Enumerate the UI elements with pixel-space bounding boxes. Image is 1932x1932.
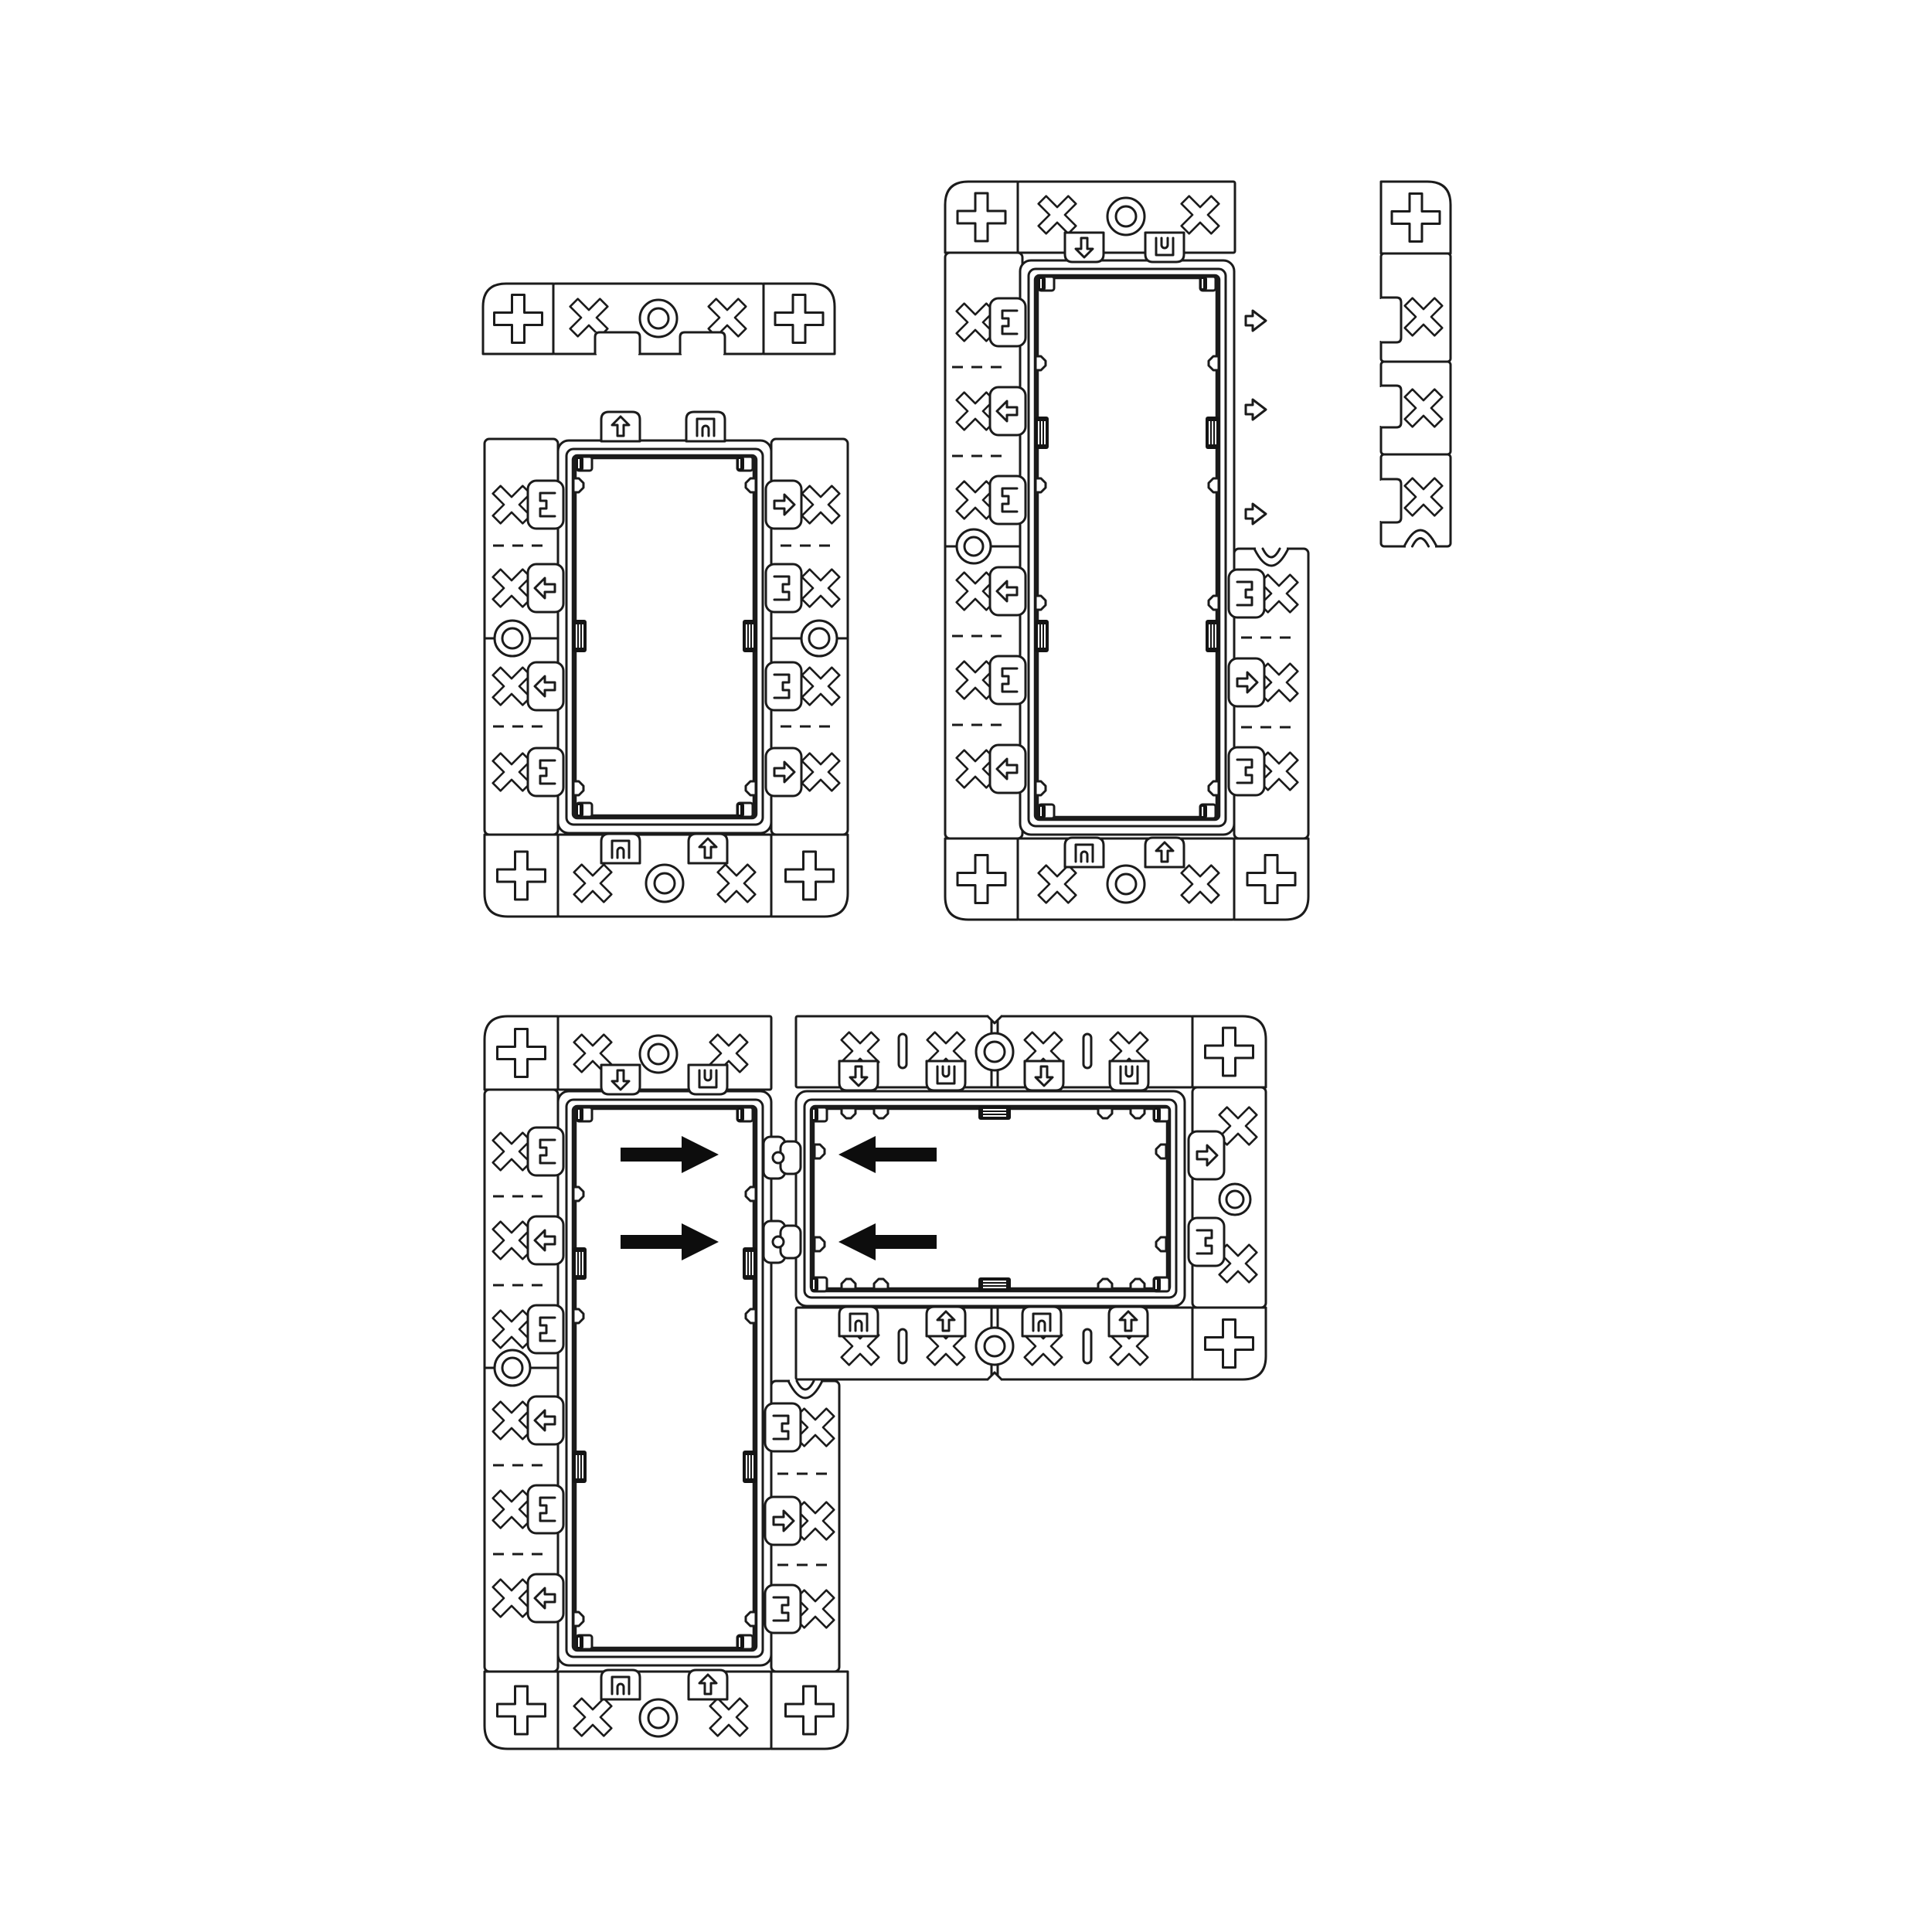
corner-clip-icon xyxy=(577,1107,592,1121)
corner-clip-icon xyxy=(1200,804,1216,818)
edge-notch xyxy=(682,351,723,357)
snap-tab xyxy=(927,1307,965,1336)
latch-clip xyxy=(765,1497,801,1545)
side-tab-icon xyxy=(573,781,583,795)
edge-notch xyxy=(1378,387,1384,426)
latch-clip xyxy=(766,748,801,796)
joint-clip-icon xyxy=(764,1221,801,1263)
bracket-assembly-diagram xyxy=(0,0,1932,1932)
side-tab-icon xyxy=(1098,1279,1112,1289)
snap-tab xyxy=(1145,233,1184,262)
side-tab-icon xyxy=(573,1309,583,1323)
screw-hole-ring-inner xyxy=(648,308,668,328)
diagram-page xyxy=(0,0,1932,1932)
snap-tab xyxy=(601,1670,640,1699)
latch-clip xyxy=(528,748,563,796)
arc-cutout xyxy=(1256,546,1287,551)
screw-hole-ring-inner xyxy=(985,1042,1005,1062)
mounting-frame-thick-wall xyxy=(574,1107,755,1649)
side-tab-icon xyxy=(1036,478,1046,492)
screw-hole-ring-inner xyxy=(655,873,675,893)
mounting-frame-thick-wall xyxy=(812,1107,1168,1290)
latch-clip xyxy=(528,1305,563,1353)
corner-clip-icon xyxy=(1039,804,1054,818)
figure-joined-right-assembly xyxy=(764,1014,1268,1382)
screw-hole-ring-inner xyxy=(502,1358,522,1378)
side-tab-icon xyxy=(1131,1279,1145,1289)
arrow-tab-icon xyxy=(1246,311,1266,331)
side-tab-icon xyxy=(1098,1108,1112,1118)
side-tab-icon xyxy=(1036,596,1046,610)
corner-clip-icon xyxy=(1039,277,1054,291)
side-tab-icon xyxy=(746,781,756,795)
snap-tab xyxy=(1065,838,1104,867)
side-tab-icon xyxy=(746,1187,756,1201)
corner-clip-icon xyxy=(577,803,592,817)
latch-clip xyxy=(766,564,801,612)
ratchet-block-icon xyxy=(1206,417,1219,449)
latch-clip xyxy=(990,387,1026,435)
side-tab-icon xyxy=(573,1612,583,1626)
arrow-tab-icon xyxy=(1246,400,1266,420)
figure-joined-left-assembly xyxy=(481,1016,848,1749)
edge-notch xyxy=(1378,481,1384,521)
side-tab-icon xyxy=(1209,596,1219,610)
latch-clip xyxy=(1229,658,1264,706)
side-tab-icon xyxy=(1156,1237,1166,1251)
latch-clip xyxy=(528,1485,563,1533)
screw-hole-ring-inner xyxy=(1116,206,1136,226)
screw-hole-ring-inner xyxy=(648,1708,668,1728)
snap-tab xyxy=(686,412,725,441)
ratchet-block-icon xyxy=(573,1247,587,1280)
slot-mark-icon xyxy=(899,1329,906,1363)
snap-tab xyxy=(1110,1061,1148,1090)
snap-tab xyxy=(601,412,640,441)
side-tab-icon xyxy=(746,1612,756,1626)
ratchet-block-icon xyxy=(743,1247,757,1280)
side-tab-icon xyxy=(1156,1145,1166,1158)
latch-clip xyxy=(528,1216,563,1264)
ratchet-block-icon xyxy=(573,620,587,652)
snap-tab xyxy=(689,834,727,863)
snap-tab xyxy=(1065,233,1104,262)
arrow-tab-icon xyxy=(1246,504,1266,524)
ratchet-block-icon xyxy=(573,1451,587,1483)
ratchet-block-icon xyxy=(1035,620,1049,652)
edge-notch xyxy=(1378,299,1384,341)
latch-clip xyxy=(766,662,801,710)
side-tab-icon xyxy=(1036,781,1046,795)
ratchet-block-icon xyxy=(978,1277,1011,1291)
snap-tab xyxy=(689,1065,727,1094)
latch-clip xyxy=(1189,1131,1224,1179)
corner-clip-icon xyxy=(811,1107,827,1121)
snap-tab xyxy=(927,1061,965,1090)
slot-mark-icon xyxy=(1083,1034,1091,1068)
corner-clip-icon xyxy=(737,803,753,817)
latch-clip xyxy=(1229,570,1264,617)
latch-clip xyxy=(765,1403,801,1451)
side-tab-icon xyxy=(746,478,756,492)
snap-tab xyxy=(1022,1307,1061,1336)
figure-detached-top-strip xyxy=(483,284,835,357)
snap-tab xyxy=(839,1061,878,1090)
side-tab-icon xyxy=(573,1187,583,1201)
corner-clip-icon xyxy=(811,1277,827,1291)
slot-mark-icon xyxy=(899,1034,906,1068)
latch-clip xyxy=(528,662,563,710)
corner-clip-icon xyxy=(737,1635,753,1649)
side-tab-icon xyxy=(1036,356,1046,370)
snap-tab xyxy=(689,1670,727,1699)
latch-clip xyxy=(766,481,801,529)
screw-hole-ring-inner xyxy=(502,628,522,648)
edge-notch xyxy=(680,332,725,354)
side-tab-icon xyxy=(573,478,583,492)
side-tab-icon xyxy=(815,1237,825,1251)
screw-hole-ring-inner xyxy=(809,628,829,648)
side-tab-icon xyxy=(874,1279,888,1289)
corner-clip-icon xyxy=(737,457,753,471)
side-tab-icon xyxy=(842,1108,855,1118)
latch-clip xyxy=(1229,747,1264,795)
side-tab-icon xyxy=(1209,356,1219,370)
corner-clip-icon xyxy=(1154,1107,1169,1121)
ratchet-block-icon xyxy=(1035,417,1049,449)
latch-clip xyxy=(765,1585,801,1633)
mounting-frame-thick-wall xyxy=(1036,277,1218,818)
latch-clip xyxy=(990,745,1026,793)
latch-clip xyxy=(528,1396,563,1444)
latch-clip xyxy=(528,481,563,529)
side-tab-icon xyxy=(1209,478,1219,492)
latch-clip xyxy=(990,567,1026,615)
snap-tab xyxy=(839,1307,878,1336)
corner-clip-icon xyxy=(577,1635,592,1649)
latch-clip xyxy=(990,656,1026,704)
side-tab-icon xyxy=(1131,1108,1145,1118)
snap-tab xyxy=(1025,1061,1063,1090)
joint-clip-icon xyxy=(764,1137,801,1179)
side-tab-icon xyxy=(874,1108,888,1118)
screw-hole-ring-inner xyxy=(1116,874,1136,894)
ratchet-block-icon xyxy=(1206,620,1219,652)
side-tab-icon xyxy=(746,1309,756,1323)
latch-clip xyxy=(990,476,1026,524)
corner-clip-icon xyxy=(737,1107,753,1121)
edge-notch xyxy=(597,351,638,357)
side-tab-icon xyxy=(815,1145,825,1158)
corner-clip-icon xyxy=(1154,1277,1169,1291)
edge-notch xyxy=(595,332,640,354)
latch-clip xyxy=(990,298,1026,346)
latch-clip xyxy=(528,1574,563,1622)
snap-tab xyxy=(1145,838,1184,867)
screw-hole-ring-inner xyxy=(964,537,983,556)
corner-clip-icon xyxy=(1200,277,1216,291)
figure-tall-frame-assembly-partial-right xyxy=(945,182,1309,920)
mounting-frame-thick-wall xyxy=(574,457,755,817)
screw-hole-ring-inner xyxy=(648,1044,668,1064)
ratchet-block-icon xyxy=(978,1106,1011,1120)
snap-tab xyxy=(1109,1307,1148,1336)
corner-clip-icon xyxy=(577,457,592,471)
figure-detached-side-strip xyxy=(1378,182,1454,549)
ratchet-block-icon xyxy=(743,1451,757,1483)
ratchet-block-icon xyxy=(743,620,757,652)
latch-clip xyxy=(528,564,563,612)
slot-mark-icon xyxy=(1083,1329,1091,1363)
snap-tab xyxy=(601,834,640,863)
side-tab-icon xyxy=(1209,781,1219,795)
latch-clip xyxy=(528,1128,563,1175)
arc-cutout xyxy=(1406,544,1435,549)
snap-tab xyxy=(601,1065,640,1094)
figure-frame-assembly-open-top xyxy=(481,412,850,917)
side-tab-icon xyxy=(842,1279,855,1289)
screw-hole-ring-inner xyxy=(985,1336,1005,1356)
latch-clip xyxy=(1189,1218,1224,1266)
screw-hole-ring-inner xyxy=(1226,1191,1243,1208)
